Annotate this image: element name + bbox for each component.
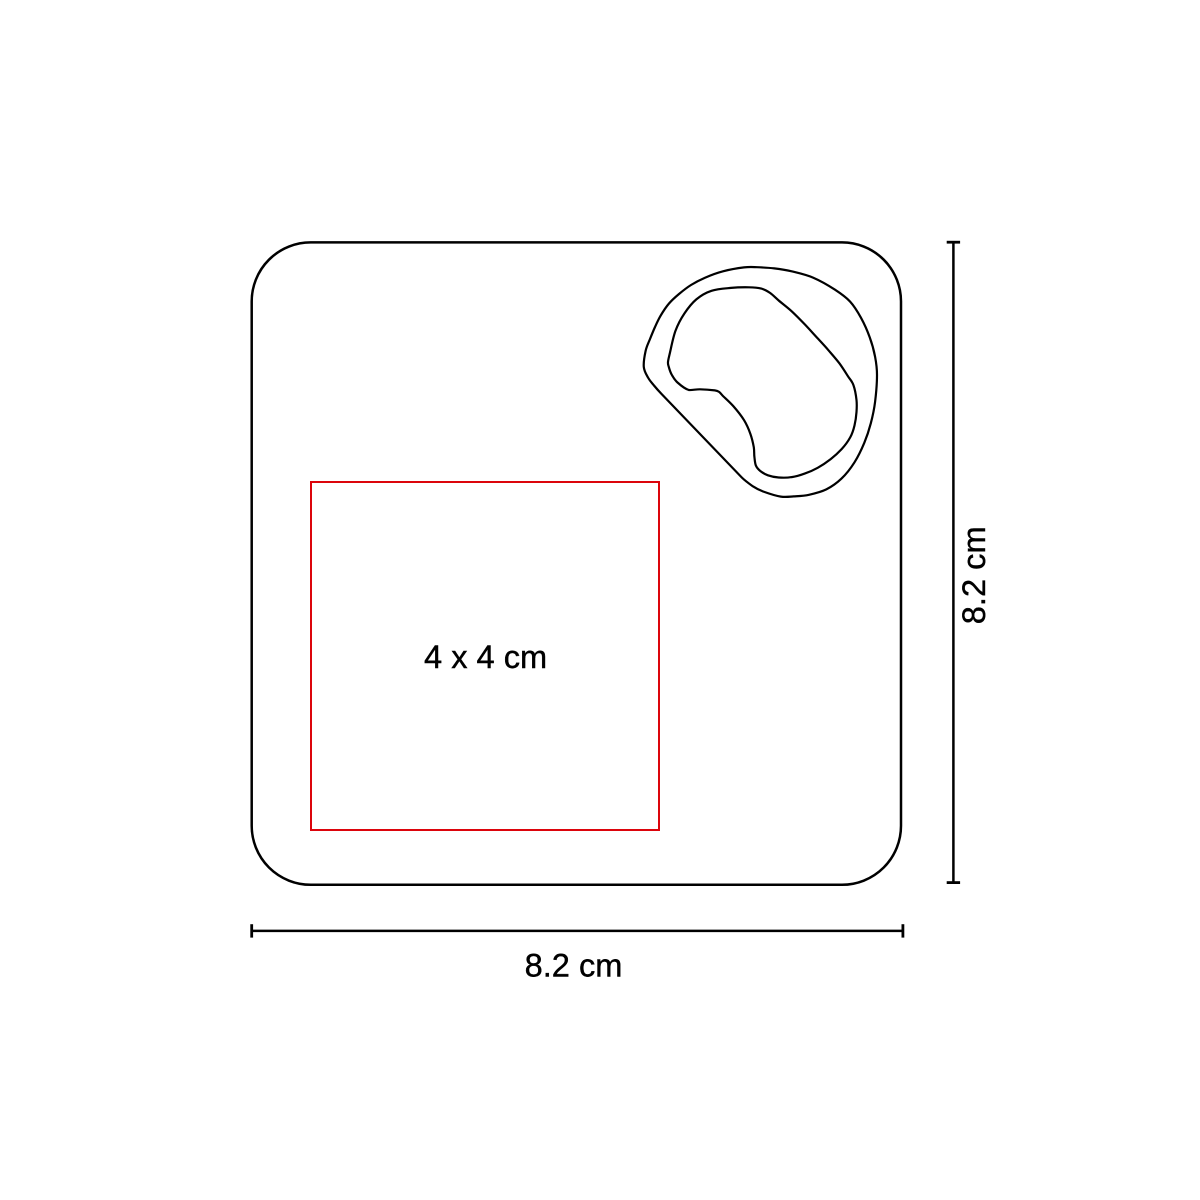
svg-text:8.2 cm: 8.2 cm (955, 526, 992, 624)
svg-text:4 x 4 cm: 4 x 4 cm (424, 638, 547, 675)
svg-text:8.2 cm: 8.2 cm (525, 946, 623, 983)
